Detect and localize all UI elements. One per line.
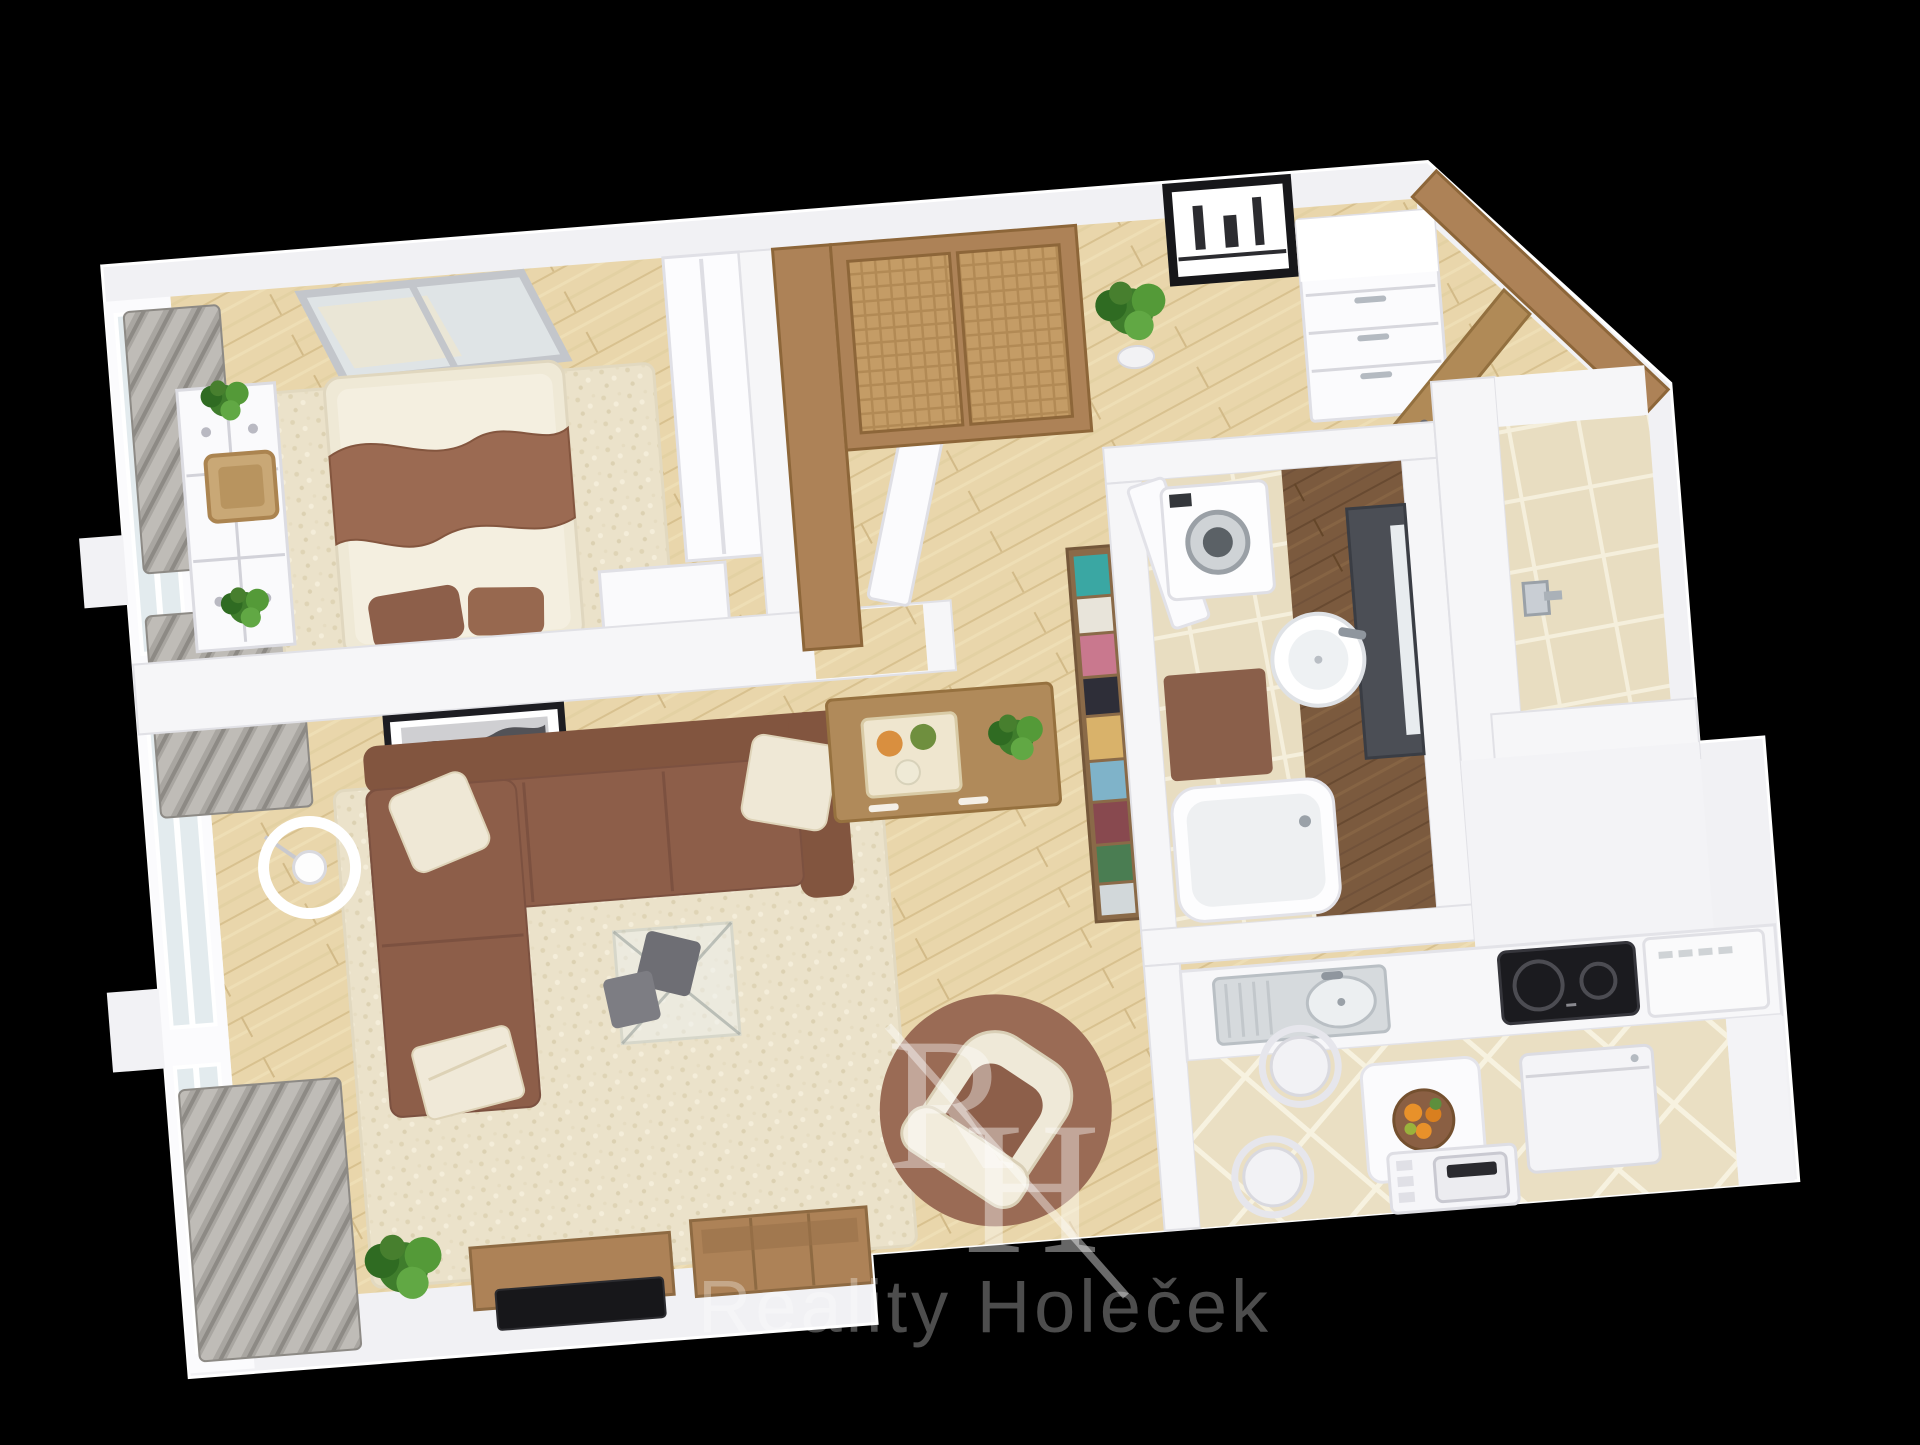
white-appliance-cabinet <box>1520 1045 1661 1173</box>
brown-bath-mat <box>1163 668 1273 782</box>
white-chair <box>1232 1136 1314 1218</box>
bathroom <box>1103 422 1475 966</box>
pillow-brown <box>468 587 544 636</box>
bathtub <box>1170 777 1342 923</box>
white-chair <box>1259 1026 1341 1108</box>
stainless-sink <box>1213 965 1390 1044</box>
window-sill-tick <box>107 989 167 1073</box>
render-stage: R H Reality Holeček <box>0 0 1920 1445</box>
gray-cushion <box>602 970 662 1030</box>
candle-cream <box>895 759 921 785</box>
toaster <box>1434 1153 1509 1203</box>
cushion-cream <box>740 733 839 832</box>
counter-run-white <box>1461 742 1715 960</box>
window-sill-tick <box>79 535 130 608</box>
washing-machine <box>1160 480 1274 600</box>
watermark-company-text: Reality Holeček <box>698 1265 1272 1348</box>
glass-coffee-table <box>598 923 740 1045</box>
toaster-on-stand <box>1387 1144 1519 1214</box>
curtain-bottom <box>179 1078 362 1362</box>
cooker-hood <box>1643 930 1769 1017</box>
framed-picture-entrance <box>1167 179 1294 282</box>
black-cooktop <box>1498 942 1639 1024</box>
floorplan-render-svg: R H Reality Holeček <box>0 0 1920 1445</box>
wc-tile-floor <box>1499 415 1671 716</box>
double-bed <box>323 360 584 658</box>
